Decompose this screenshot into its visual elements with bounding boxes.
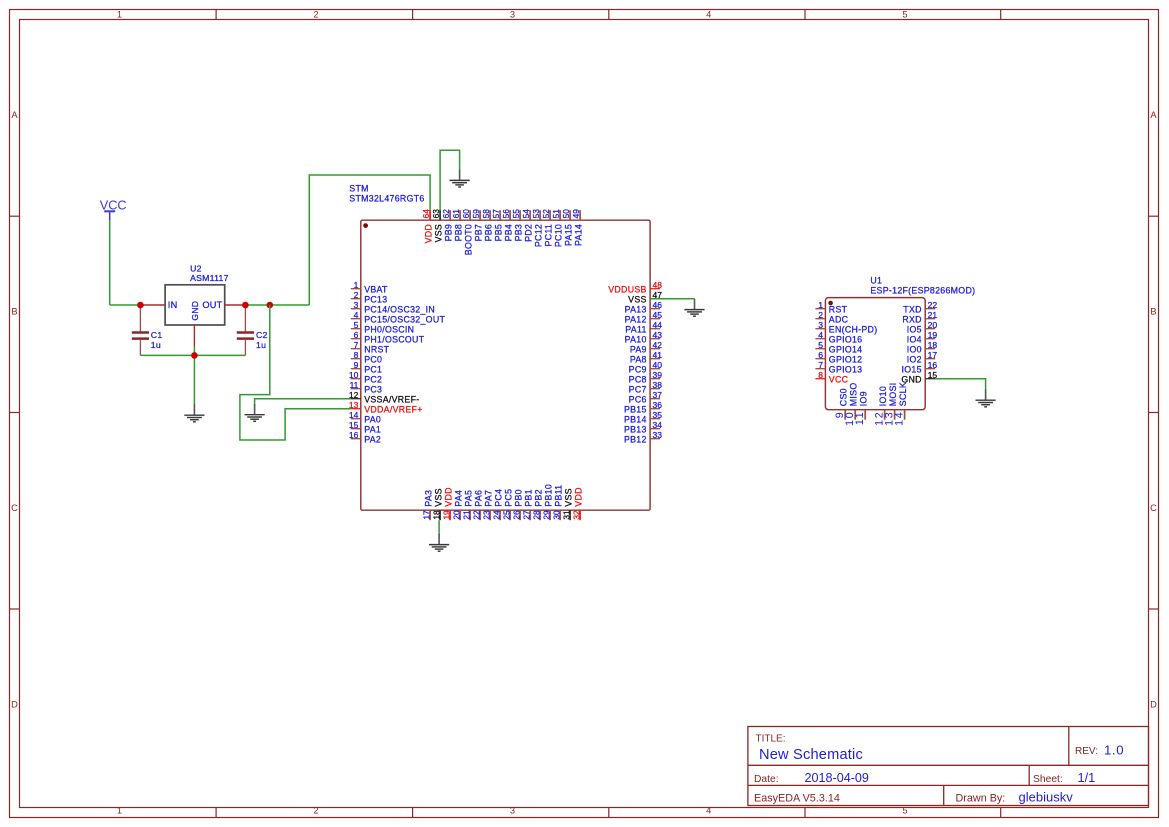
svg-text:ADC: ADC [829, 315, 849, 325]
svg-text:48: 48 [653, 280, 663, 290]
svg-text:6: 6 [354, 330, 359, 340]
svg-text:3: 3 [818, 320, 823, 330]
svg-text:GPIO13: GPIO13 [829, 365, 863, 375]
svg-text:STM: STM [349, 184, 368, 194]
svg-text:PC12: PC12 [533, 224, 543, 247]
svg-text:TITLE:: TITLE: [756, 734, 786, 745]
svg-text:PB7: PB7 [473, 224, 483, 242]
svg-text:1: 1 [117, 10, 122, 20]
svg-text:GND: GND [190, 301, 200, 321]
svg-text:2: 2 [313, 10, 318, 20]
svg-text:STM32L476RGT6: STM32L476RGT6 [349, 193, 424, 203]
svg-text:4: 4 [818, 330, 823, 340]
svg-text:IO4: IO4 [907, 335, 922, 345]
svg-text:VSSA/VREF-: VSSA/VREF- [364, 395, 419, 405]
svg-text:C2: C2 [256, 330, 268, 340]
svg-text:PC3: PC3 [364, 385, 382, 395]
svg-text:12: 12 [349, 390, 359, 400]
svg-text:VDD: VDD [573, 487, 583, 506]
svg-text:41: 41 [653, 350, 663, 360]
svg-text:PB0: PB0 [513, 489, 523, 507]
svg-text:PA2: PA2 [364, 435, 381, 445]
svg-text:GPIO16: GPIO16 [829, 335, 863, 345]
svg-text:B: B [1150, 307, 1156, 317]
svg-text:3: 3 [510, 10, 515, 20]
svg-text:TXD: TXD [903, 305, 922, 315]
svg-text:14: 14 [894, 411, 906, 426]
svg-text:PA0: PA0 [364, 415, 381, 425]
svg-text:1u: 1u [151, 340, 161, 350]
svg-text:PB6: PB6 [483, 224, 493, 242]
svg-text:PC14/OSC32_IN: PC14/OSC32_IN [364, 305, 435, 315]
svg-text:52: 52 [541, 209, 551, 219]
svg-text:IN: IN [168, 300, 178, 310]
svg-text:PB9: PB9 [443, 224, 453, 242]
svg-text:D: D [1150, 700, 1157, 710]
svg-text:PB8: PB8 [453, 224, 463, 242]
svg-text:5: 5 [902, 10, 907, 20]
svg-text:BOOT0: BOOT0 [463, 224, 473, 255]
svg-text:D: D [11, 700, 18, 710]
svg-text:PC15/OSC32_OUT: PC15/OSC32_OUT [364, 315, 445, 325]
svg-text:55: 55 [511, 209, 521, 219]
svg-text:18: 18 [928, 340, 938, 350]
svg-text:PC7: PC7 [629, 385, 647, 395]
svg-text:PH1/OSCOUT: PH1/OSCOUT [364, 335, 425, 345]
svg-text:1: 1 [818, 300, 823, 310]
svg-text:PA14: PA14 [573, 224, 583, 246]
svg-text:60: 60 [461, 209, 471, 219]
svg-text:CS0: CS0 [838, 388, 848, 406]
svg-text:56: 56 [501, 209, 511, 219]
svg-text:Sheet:: Sheet: [1033, 774, 1063, 785]
svg-text:2: 2 [354, 290, 359, 300]
svg-text:57: 57 [491, 209, 501, 219]
svg-text:PB15: PB15 [624, 405, 647, 415]
svg-text:5: 5 [902, 806, 907, 816]
svg-text:PB12: PB12 [624, 435, 647, 445]
svg-text:PC2: PC2 [364, 375, 382, 385]
svg-text:IO2: IO2 [907, 355, 922, 365]
svg-text:64: 64 [421, 209, 431, 219]
svg-text:PA12: PA12 [625, 315, 647, 325]
svg-text:VSS: VSS [433, 488, 443, 507]
svg-text:18: 18 [431, 510, 441, 520]
svg-text:PA11: PA11 [625, 325, 646, 335]
svg-text:11: 11 [350, 380, 359, 390]
svg-text:14: 14 [349, 410, 359, 420]
svg-text:43: 43 [653, 330, 663, 340]
svg-text:PC9: PC9 [629, 365, 647, 375]
svg-text:PB11: PB11 [553, 485, 563, 507]
svg-text:PB10: PB10 [543, 484, 553, 507]
svg-text:37: 37 [653, 390, 663, 400]
svg-text:42: 42 [653, 340, 663, 350]
svg-text:40: 40 [653, 360, 663, 370]
svg-text:PC4: PC4 [493, 489, 503, 507]
svg-text:1/1: 1/1 [1078, 770, 1096, 785]
svg-text:22: 22 [928, 300, 938, 310]
svg-text:28: 28 [531, 510, 541, 520]
svg-text:VBAT: VBAT [364, 285, 388, 295]
svg-text:VSS: VSS [433, 224, 443, 243]
svg-text:U1: U1 [870, 276, 882, 286]
svg-text:9: 9 [354, 360, 359, 370]
svg-text:1u: 1u [256, 340, 266, 350]
svg-text:8: 8 [354, 350, 359, 360]
svg-text:51: 51 [551, 209, 561, 219]
svg-text:19: 19 [928, 330, 938, 340]
svg-text:3: 3 [510, 806, 515, 816]
svg-text:58: 58 [481, 209, 491, 219]
svg-text:21: 21 [928, 310, 938, 320]
svg-text:53: 53 [531, 209, 541, 219]
svg-text:24: 24 [491, 510, 501, 520]
svg-text:PC0: PC0 [364, 355, 382, 365]
svg-text:7: 7 [818, 360, 823, 370]
svg-text:5: 5 [354, 320, 359, 330]
svg-text:54: 54 [521, 209, 531, 219]
svg-text:20: 20 [928, 320, 938, 330]
svg-text:PC6: PC6 [629, 395, 647, 405]
svg-text:PA9: PA9 [630, 345, 647, 355]
svg-text:33: 33 [653, 430, 663, 440]
svg-text:1: 1 [354, 280, 359, 290]
svg-text:PC11: PC11 [543, 224, 553, 247]
svg-text:8: 8 [818, 370, 823, 380]
svg-text:34: 34 [653, 420, 663, 430]
svg-text:C: C [11, 503, 18, 513]
svg-text:11: 11 [854, 411, 866, 425]
svg-text:GPIO14: GPIO14 [829, 345, 863, 355]
svg-text:PC10: PC10 [553, 224, 563, 247]
svg-text:19: 19 [441, 510, 451, 520]
svg-text:29: 29 [541, 510, 551, 520]
svg-text:38: 38 [653, 380, 663, 390]
svg-text:RST: RST [829, 305, 848, 315]
svg-text:3: 3 [354, 300, 359, 310]
svg-text:RXD: RXD [902, 315, 921, 325]
svg-text:VSS: VSS [628, 295, 647, 305]
svg-text:32: 32 [571, 510, 581, 520]
svg-text:13: 13 [349, 400, 359, 410]
svg-text:PA5: PA5 [463, 490, 473, 507]
svg-text:PA1: PA1 [364, 425, 381, 435]
svg-text:PB1: PB1 [523, 489, 533, 507]
svg-text:OUT: OUT [202, 300, 222, 310]
svg-text:4: 4 [706, 806, 711, 816]
svg-text:EasyEDA V5.3.14: EasyEDA V5.3.14 [754, 792, 840, 804]
svg-text:VDDUSB: VDDUSB [608, 285, 646, 295]
svg-text:glebiuskv: glebiuskv [1019, 790, 1074, 805]
svg-text:63: 63 [431, 209, 441, 219]
svg-text:PB5: PB5 [493, 224, 503, 242]
svg-text:2: 2 [818, 310, 823, 320]
svg-text:PA6: PA6 [473, 490, 483, 507]
svg-text:17: 17 [421, 510, 431, 520]
svg-text:7: 7 [354, 340, 359, 350]
svg-text:ASM1117: ASM1117 [190, 273, 229, 283]
svg-text:A: A [1150, 110, 1157, 120]
svg-text:6: 6 [818, 350, 823, 360]
svg-text:15: 15 [349, 420, 359, 430]
svg-text:PA13: PA13 [625, 305, 647, 315]
svg-text:35: 35 [653, 410, 663, 420]
svg-text:PA15: PA15 [563, 224, 573, 246]
svg-text:IO10: IO10 [878, 386, 888, 406]
svg-text:PH0/OSCIN: PH0/OSCIN [364, 325, 414, 335]
svg-text:PC5: PC5 [503, 489, 513, 507]
svg-text:B: B [11, 307, 17, 317]
svg-text:2018-04-09: 2018-04-09 [805, 771, 869, 785]
svg-text:PC13: PC13 [364, 295, 387, 305]
svg-text:VCC: VCC [100, 198, 127, 212]
svg-text:30: 30 [551, 510, 561, 520]
svg-text:PC8: PC8 [629, 375, 647, 385]
svg-text:PA8: PA8 [630, 355, 647, 365]
svg-text:IO5: IO5 [907, 325, 922, 335]
svg-text:IO15: IO15 [902, 365, 922, 375]
svg-text:4: 4 [354, 310, 359, 320]
svg-text:36: 36 [653, 400, 663, 410]
svg-text:21: 21 [461, 510, 471, 520]
svg-text:23: 23 [481, 510, 491, 520]
svg-text:PA3: PA3 [423, 490, 433, 507]
svg-text:45: 45 [653, 310, 663, 320]
svg-text:Drawn By:: Drawn By: [956, 792, 1006, 804]
svg-text:31: 31 [561, 510, 571, 520]
svg-text:62: 62 [441, 209, 451, 219]
svg-text:SCLK: SCLK [898, 382, 908, 406]
svg-text:44: 44 [653, 320, 663, 330]
svg-text:1.0: 1.0 [1104, 743, 1124, 758]
svg-text:PB14: PB14 [624, 415, 647, 425]
svg-text:4: 4 [706, 10, 711, 20]
svg-text:26: 26 [511, 510, 521, 520]
svg-text:59: 59 [471, 209, 481, 219]
svg-text:PB3: PB3 [513, 224, 523, 242]
svg-text:PB13: PB13 [624, 425, 647, 435]
svg-text:C: C [1150, 503, 1157, 513]
svg-text:22: 22 [471, 510, 481, 520]
svg-text:REV:: REV: [1075, 746, 1098, 757]
svg-text:50: 50 [561, 209, 571, 219]
svg-text:VDD: VDD [423, 224, 433, 243]
svg-text:VSS: VSS [563, 488, 573, 507]
svg-text:ESP-12F(ESP8266MOD): ESP-12F(ESP8266MOD) [870, 285, 975, 295]
svg-text:EN(CH-PD): EN(CH-PD) [829, 325, 878, 335]
svg-text:10: 10 [349, 370, 359, 380]
svg-text:17: 17 [928, 350, 938, 360]
svg-text:49: 49 [571, 209, 581, 219]
svg-text:20: 20 [451, 510, 461, 520]
svg-text:2: 2 [313, 806, 318, 816]
svg-text:VDD: VDD [443, 487, 453, 506]
svg-text:16: 16 [349, 430, 359, 440]
svg-text:MOSI: MOSI [888, 383, 898, 407]
svg-text:IO0: IO0 [907, 345, 922, 355]
svg-text:PB4: PB4 [503, 224, 513, 242]
svg-text:PA10: PA10 [625, 335, 647, 345]
svg-text:27: 27 [521, 510, 531, 520]
svg-text:Date:: Date: [754, 774, 779, 785]
svg-text:VCC: VCC [829, 375, 849, 385]
svg-text:16: 16 [928, 360, 938, 370]
svg-text:PA7: PA7 [483, 490, 493, 507]
svg-text:46: 46 [653, 300, 663, 310]
svg-text:C1: C1 [151, 330, 163, 340]
svg-text:GPIO12: GPIO12 [829, 355, 863, 365]
svg-text:IO9: IO9 [858, 391, 868, 406]
svg-text:A: A [11, 110, 18, 120]
svg-text:PB2: PB2 [533, 489, 543, 507]
svg-text:MISO: MISO [848, 383, 858, 407]
svg-text:5: 5 [818, 340, 823, 350]
svg-text:1: 1 [117, 806, 122, 816]
svg-text:25: 25 [501, 510, 511, 520]
svg-text:PC1: PC1 [364, 365, 382, 375]
svg-text:39: 39 [653, 370, 663, 380]
svg-text:PD2: PD2 [523, 224, 533, 242]
svg-text:61: 61 [451, 209, 461, 219]
svg-text:VDDA/VREF+: VDDA/VREF+ [364, 405, 422, 415]
svg-text:NRST: NRST [364, 345, 389, 355]
svg-text:New Schematic: New Schematic [759, 747, 863, 763]
svg-text:PA4: PA4 [453, 490, 463, 507]
